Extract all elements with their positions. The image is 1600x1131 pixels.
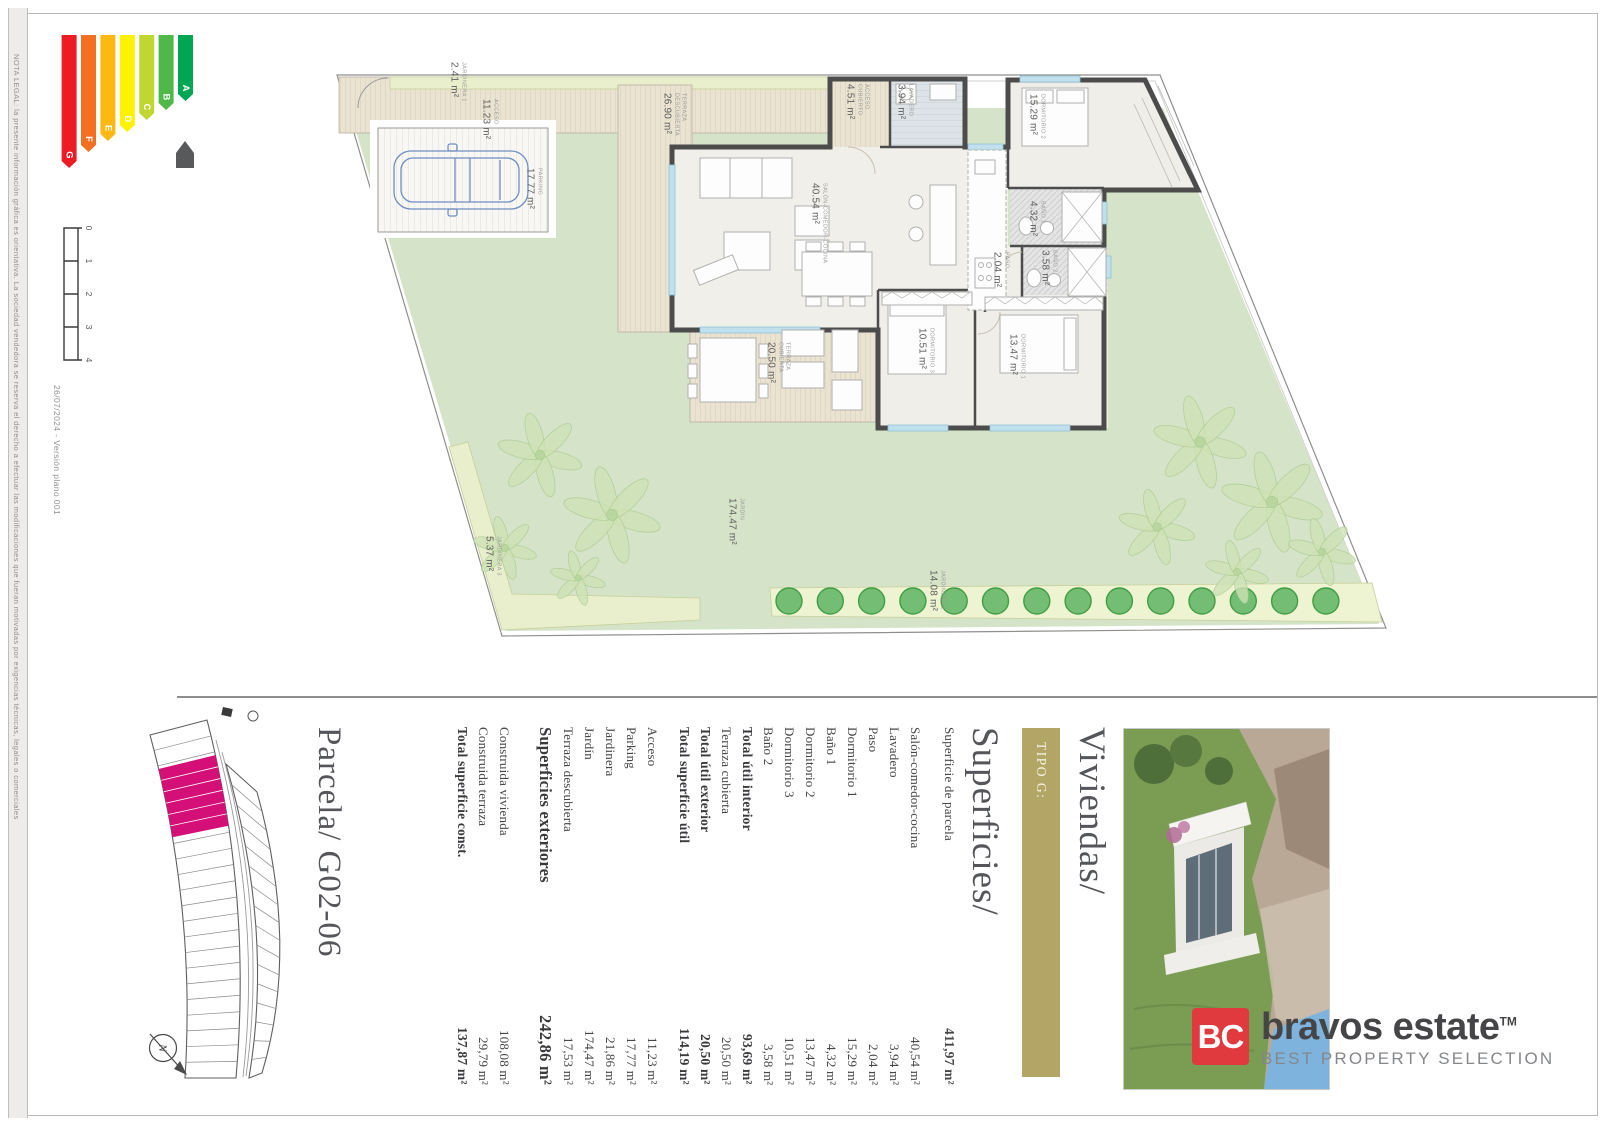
surface-row: Baño 14,32 m² — [823, 727, 839, 1085]
surface-row: Jardinera21,86 m² — [602, 727, 618, 1085]
surface-row: Terraza descubierta17,53 m² — [560, 727, 576, 1085]
room-label-jardinera-3: JARDINERA 35.37 m² — [482, 536, 501, 576]
room-label-paso: PASO2.04 m² — [990, 252, 1009, 287]
room-label-terraza-cubierta: TERRAZA CUBIERTA20.50 m² — [764, 342, 790, 400]
surface-row: Construida vivienda108,08 m² — [496, 727, 512, 1085]
floor-plan — [300, 50, 1400, 665]
brand-tagline: BEST PROPERTY SELECTION — [1261, 1049, 1554, 1069]
brand-name: bravos estateTM — [1261, 1008, 1554, 1048]
legal-strip: NOTA LEGAL: la presente información gráf… — [8, 8, 28, 1118]
room-label-bano-2: BAÑO 23.58 m² — [1038, 250, 1057, 292]
svg-text:D: D — [122, 116, 133, 123]
room-label-salon: SALÓN-COMEDOR-COCINA40.54 m² — [808, 183, 827, 263]
svg-text:4: 4 — [84, 358, 94, 363]
viviendas-title: Viviendas/ — [1070, 727, 1113, 895]
highlighted-parcels — [159, 755, 229, 837]
surface-row-total: Total superficie útil114,19 m² — [676, 727, 692, 1085]
surface-row: Dormitorio 115,29 m² — [844, 727, 860, 1085]
surface-row-total: Total superficie const.137,87 m² — [454, 727, 470, 1085]
room-label-dormitorio-2: DORMITORIO 215.29 m² — [1026, 94, 1045, 139]
brand-logo: BC bravos estateTM BEST PROPERTY SELECTI… — [1192, 1008, 1554, 1069]
room-label-jardinera-2: JARDINERA 214.08 m² — [926, 570, 945, 611]
svg-text:C: C — [141, 104, 152, 111]
room-label-lavadero: LAVADERO3.94 m² — [894, 84, 913, 119]
surface-row: Terraza cubierta20,50 m² — [718, 727, 734, 1085]
brand-logo-mark: BC — [1192, 1008, 1249, 1065]
room-label-acceso-cubierto: ACCESO CUBIERTO4.51 m² — [843, 84, 869, 126]
legal-note: NOTA LEGAL: la presente información gráf… — [12, 54, 21, 820]
house-icon — [176, 141, 194, 168]
surface-row-section-total: Superficies exteriores242,86 m² — [535, 727, 555, 1085]
room-label-dormitorio-3: DORMITORIO 310.51 m² — [915, 328, 934, 373]
svg-text:3: 3 — [84, 325, 94, 330]
room-label-acceso: ACCESO11.23 m² — [479, 99, 498, 139]
svg-text:A: A — [180, 85, 191, 92]
brand-initials: BC — [1198, 1018, 1244, 1056]
surface-row: Baño 23,58 m² — [760, 727, 776, 1085]
type-label: TIPO G: — [1033, 742, 1049, 799]
site-plan: N — [130, 700, 340, 1095]
svg-text:B: B — [161, 94, 172, 101]
frame-line-top — [8, 13, 1598, 14]
surface-row: Dormitorio 310,51 m² — [781, 727, 797, 1085]
svg-text:0: 0 — [84, 226, 94, 231]
north-arrow-icon: N — [150, 1034, 188, 1075]
surface-row-total: Total útil exterior20,50 m² — [697, 727, 713, 1085]
surface-row: Dormitorio 213,47 m² — [802, 727, 818, 1085]
room-label-dormitorio-1: DORMITORIO 113.47 m² — [1006, 334, 1025, 379]
energy-rating-label: ABCDEFG — [50, 28, 210, 183]
surface-row: Superficie de parcela411,97 m² — [941, 727, 957, 1085]
svg-text:1: 1 — [84, 259, 94, 264]
room-label-parking: PARKING17.77 m² — [523, 168, 542, 209]
surface-row: Jardín174,47 m² — [581, 727, 597, 1085]
room-label-jardinera-1: JARDINERA 12.41 m² — [447, 62, 466, 102]
surface-row: Paso2,04 m² — [865, 727, 881, 1085]
surface-row-total: Total útil interior93,69 m² — [739, 727, 755, 1085]
surfaces-table: Superficie de parcela411,97 m² Salón-com… — [505, 727, 957, 1085]
surface-row: Parking17,77 m² — [623, 727, 639, 1085]
surface-row: Salón-comedor-cocina40,54 m² — [907, 727, 923, 1085]
svg-text:N: N — [156, 1043, 170, 1053]
surface-row: Acceso11,23 m² — [644, 727, 660, 1085]
frame-line-right — [1597, 13, 1598, 1115]
type-bar: TIPO G: — [1022, 728, 1060, 1077]
plan-sheet: NOTA LEGAL: la presente información gráf… — [0, 0, 1600, 1131]
room-label-jardin: JARDÍN174.47 m² — [725, 498, 744, 545]
parcela-title: Parcela/ G02-06 — [310, 727, 347, 957]
frame-line-bottom — [28, 1115, 1598, 1116]
surface-row: Lavadero3,94 m² — [886, 727, 902, 1085]
svg-text:F: F — [83, 136, 94, 142]
section-divider — [177, 696, 1597, 698]
room-label-terraza-descubierta: TERRAZA DESCUBIERTA26.90 m² — [660, 93, 686, 157]
svg-text:G: G — [64, 151, 75, 158]
scale-bar: 01234 — [52, 218, 100, 418]
svg-text:E: E — [102, 125, 113, 131]
room-label-bano-1: BAÑO 14.32 m² — [1026, 201, 1045, 243]
surface-row: Construida terraza29,79 m² — [475, 727, 491, 1085]
svg-text:2: 2 — [84, 292, 94, 297]
superficies-title: Superficies/ — [963, 727, 1006, 916]
brand-trademark: TM — [1500, 1014, 1517, 1028]
